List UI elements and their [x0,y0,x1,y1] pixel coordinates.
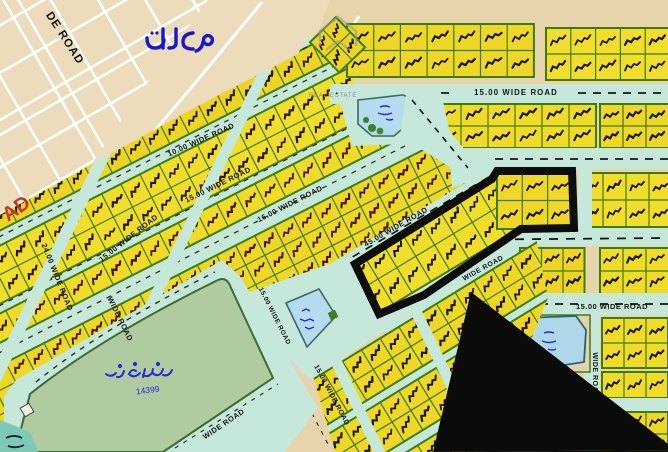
svg-text:15.00 WIDE ROAD: 15.00 WIDE ROAD [474,88,558,97]
svg-text:REAL ESTATE: REAL ESTATE [309,93,357,99]
svg-text:15.00 WIDE ROAD: 15.00 WIDE ROAD [576,302,648,311]
